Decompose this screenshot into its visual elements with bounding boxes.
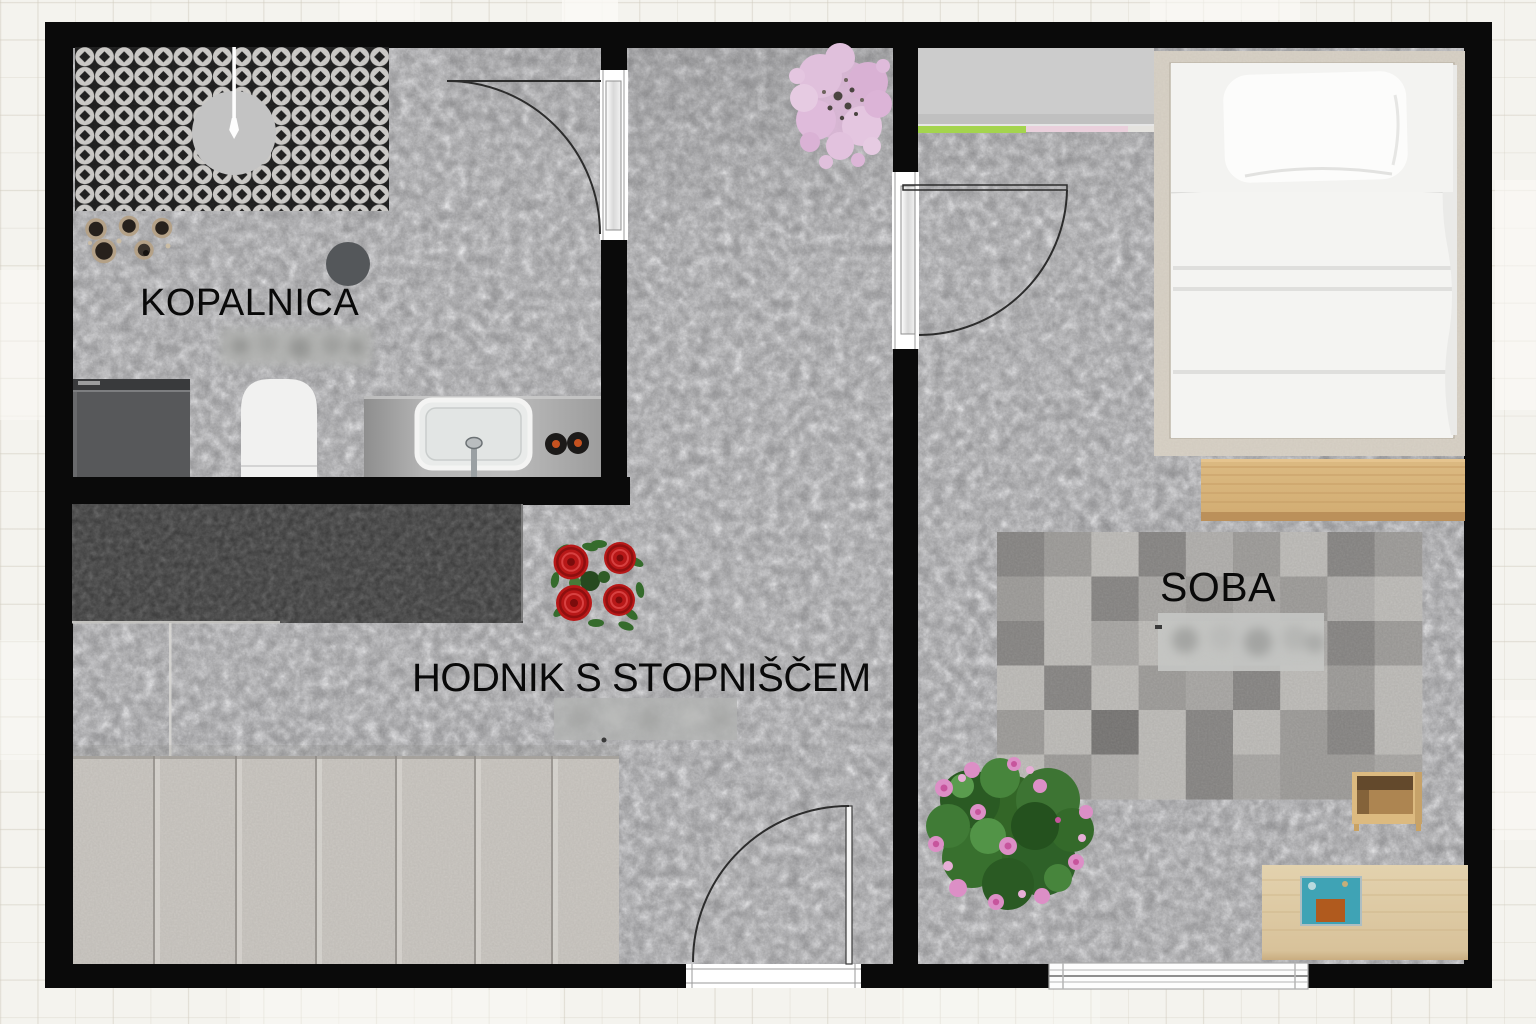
- svg-text:SOBA: SOBA: [1160, 564, 1276, 610]
- svg-text:KOPALNICA: KOPALNICA: [140, 282, 359, 324]
- svg-text:HODNIK S STOPNIŠČEM: HODNIK S STOPNIŠČEM: [412, 655, 871, 700]
